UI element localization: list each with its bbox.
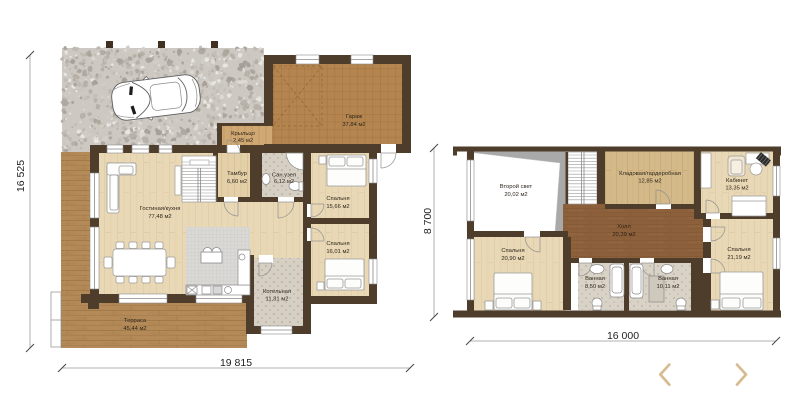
svg-text:16 525: 16 525 xyxy=(15,160,27,192)
svg-text:Котельная11,31 м2: Котельная11,31 м2 xyxy=(263,289,291,303)
svg-text:Кабинет13,35 м2: Кабинет13,35 м2 xyxy=(725,178,748,192)
svg-text:19 815: 19 815 xyxy=(220,357,252,369)
svg-text:Тамбур6,60 м2: Тамбур6,60 м2 xyxy=(227,171,247,185)
svg-text:Сан.узел6,12 м2: Сан.узел6,12 м2 xyxy=(272,173,296,186)
svg-text:16 000: 16 000 xyxy=(607,330,639,342)
svg-text:8 700: 8 700 xyxy=(422,208,434,234)
